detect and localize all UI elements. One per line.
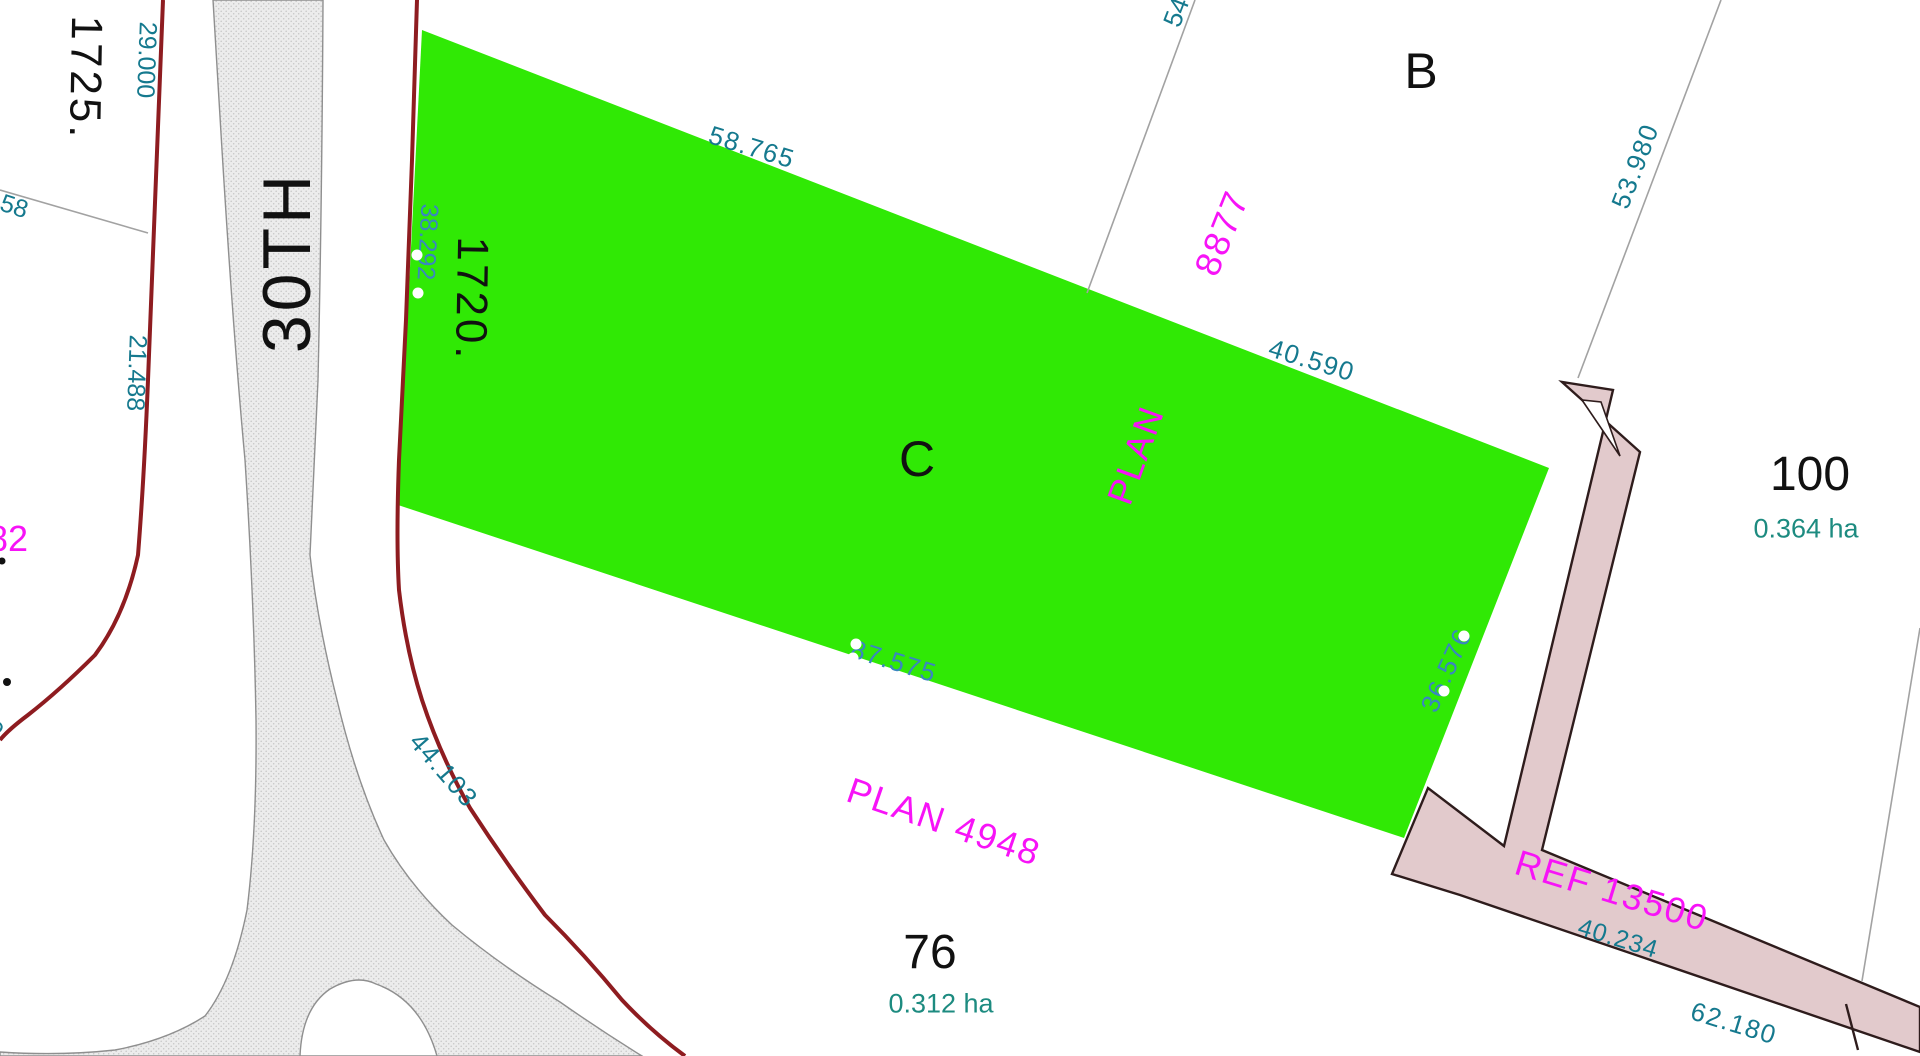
parcel-label-76: 76 <box>903 929 956 977</box>
map-canvas[interactable]: 30TH 1725. 1720. B C 76 100 82 0.312 ha … <box>0 0 1920 1056</box>
area-label-76: 0.312 ha <box>888 991 993 1018</box>
parcel-line-54 <box>1087 0 1195 293</box>
parcel-c-polygon[interactable] <box>398 30 1549 838</box>
survey-point-marker <box>1439 686 1450 697</box>
parcel-line-53980 <box>1578 0 1721 378</box>
parcel-label-1720: 1720. <box>448 236 494 362</box>
dimension-label-21-488: 21.488 <box>122 334 150 411</box>
survey-point-marker <box>848 653 859 664</box>
parcel-label-c: C <box>899 434 935 484</box>
parcel-label-1725: 1725. <box>62 15 108 141</box>
dimension-label-38-292: 38.292 <box>413 203 442 281</box>
area-label-100: 0.364 ha <box>1753 516 1858 543</box>
parcel-label-b: B <box>1404 46 1437 96</box>
parcel-label-100: 100 <box>1770 451 1850 499</box>
parcel-label-82-partial: 82 <box>0 521 28 557</box>
survey-point-marker <box>413 288 424 299</box>
survey-point-marker <box>412 250 423 261</box>
map-point-dot <box>3 678 11 686</box>
road-name-label: 30TH <box>253 171 321 353</box>
dimension-label-29-000: 29.000 <box>132 21 160 98</box>
survey-point-marker <box>1459 631 1470 642</box>
parcel-line-100 <box>1862 628 1920 981</box>
survey-point-marker <box>851 639 862 650</box>
